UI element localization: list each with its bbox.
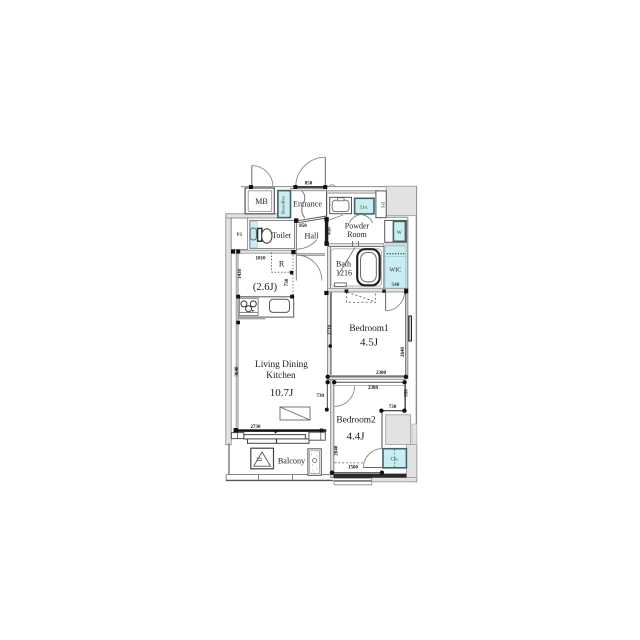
- svg-text:Bedroom2: Bedroom2: [336, 416, 376, 426]
- svg-text:Room: Room: [347, 230, 367, 239]
- svg-text:PS: PS: [236, 232, 242, 238]
- svg-text:Entrance: Entrance: [293, 199, 322, 208]
- svg-text:850: 850: [305, 182, 313, 187]
- svg-text:ShoesBox: ShoesBox: [281, 195, 286, 214]
- svg-text:1810: 1810: [256, 256, 267, 261]
- svg-text:990: 990: [404, 389, 409, 397]
- svg-text:(2.6J): (2.6J): [253, 282, 278, 293]
- svg-text:W: W: [397, 230, 403, 236]
- svg-text:WIC: WIC: [389, 267, 401, 274]
- svg-text:730: 730: [317, 394, 325, 399]
- svg-text:2040: 2040: [335, 445, 340, 456]
- svg-text:Kitchen: Kitchen: [266, 371, 296, 381]
- svg-text:Balcony: Balcony: [278, 457, 306, 466]
- svg-text:730: 730: [285, 278, 290, 286]
- svg-text:2300: 2300: [376, 371, 387, 376]
- svg-text:Lin.: Lin.: [360, 206, 368, 211]
- svg-text:2640: 2640: [401, 347, 406, 358]
- svg-text:1216: 1216: [336, 268, 352, 277]
- svg-text:1500: 1500: [348, 466, 359, 471]
- svg-text:4.5J: 4.5J: [360, 337, 379, 349]
- svg-text:730: 730: [389, 405, 397, 410]
- svg-text:3640: 3640: [235, 366, 240, 377]
- svg-text:10.7J: 10.7J: [270, 387, 294, 399]
- svg-text:Bedroom1: Bedroom1: [349, 324, 389, 334]
- svg-text:Hall: Hall: [304, 232, 319, 241]
- svg-text:850: 850: [328, 227, 333, 235]
- svg-text:Living Dining: Living Dining: [255, 360, 308, 370]
- svg-text:4.4J: 4.4J: [346, 431, 365, 443]
- svg-text:2380: 2380: [368, 386, 379, 391]
- svg-text:2730: 2730: [251, 425, 262, 430]
- svg-text:1430: 1430: [238, 269, 243, 280]
- svg-text:850: 850: [299, 224, 307, 229]
- svg-text:MB: MB: [255, 197, 267, 206]
- svg-text:Clo.: Clo.: [391, 458, 399, 463]
- svg-text:Toilet: Toilet: [272, 231, 292, 240]
- svg-text:R: R: [279, 260, 285, 269]
- svg-text:540: 540: [392, 282, 400, 288]
- svg-text:P.S: P.S: [380, 202, 385, 208]
